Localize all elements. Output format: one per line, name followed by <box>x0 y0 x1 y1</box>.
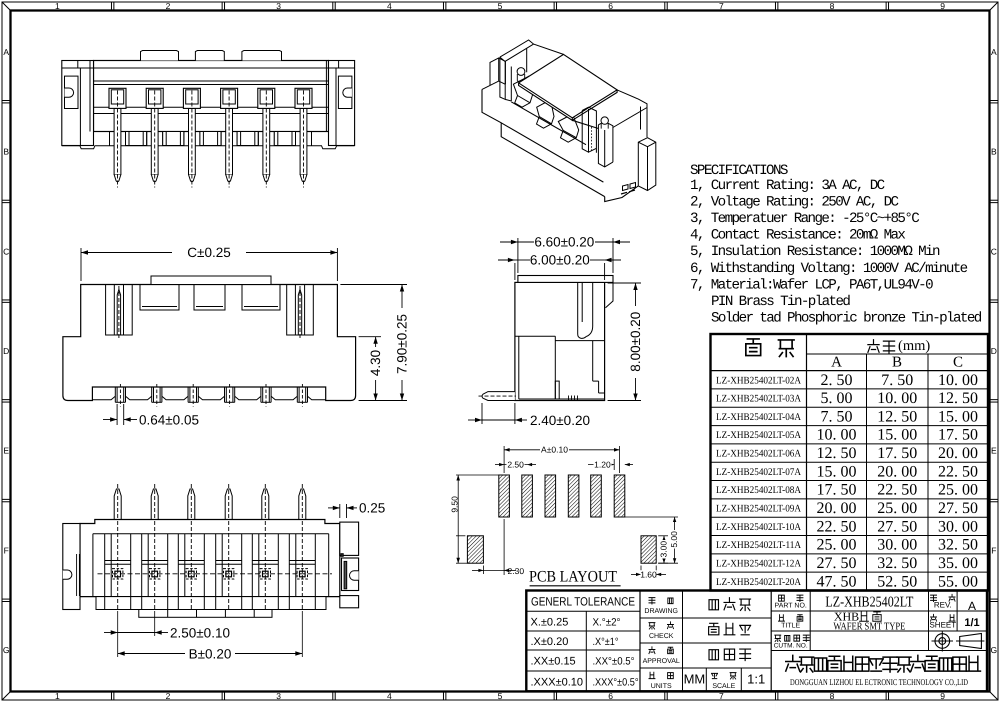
svg-text:.XX°±0.5°: .XX°±0.5° <box>593 656 635 668</box>
svg-text:B±0.20: B±0.20 <box>189 647 232 662</box>
svg-text:LZ-XHB25402LT-12A: LZ-XHB25402LT-12A <box>716 559 802 570</box>
svg-text:22. 50: 22. 50 <box>877 482 917 499</box>
svg-text:C: C <box>3 246 9 256</box>
svg-text:3.00: 3.00 <box>658 541 668 558</box>
svg-text:8: 8 <box>830 1 835 11</box>
svg-text:6: 6 <box>608 1 613 11</box>
svg-text:CUTM. NO.: CUTM. NO. <box>774 643 808 650</box>
svg-text:PIN Brass Tin-plated: PIN Brass Tin-plated <box>711 294 850 310</box>
svg-text:PCB LAYOUT: PCB LAYOUT <box>529 569 617 586</box>
svg-text:6.00±0.20: 6.00±0.20 <box>530 253 590 268</box>
svg-text:LZ-XHB25402LT-03A: LZ-XHB25402LT-03A <box>716 394 802 405</box>
svg-text:MM: MM <box>684 672 706 687</box>
svg-text:30. 00: 30. 00 <box>938 518 978 535</box>
svg-text:PART NO.: PART NO. <box>775 603 807 610</box>
svg-text:SPECIFICATIONS: SPECIFICATIONS <box>690 163 788 179</box>
svg-text:E: E <box>991 446 997 456</box>
svg-text:C: C <box>991 246 997 256</box>
svg-text:LZ-XHB25402LT-20A: LZ-XHB25402LT-20A <box>716 577 802 588</box>
svg-text:3: 3 <box>276 1 281 11</box>
svg-text:SHEET: SHEET <box>929 621 956 630</box>
svg-text:4: 4 <box>387 1 392 11</box>
svg-text:A: A <box>3 47 9 57</box>
svg-text:LZ-XHB25402LT-05A: LZ-XHB25402LT-05A <box>716 430 802 441</box>
svg-text:15. 00: 15. 00 <box>877 427 917 444</box>
svg-text:2.40±0.20: 2.40±0.20 <box>530 413 590 428</box>
svg-text:20. 00: 20. 00 <box>877 463 917 480</box>
svg-text:15. 00: 15. 00 <box>817 463 857 480</box>
svg-text:REV.: REV. <box>934 601 952 610</box>
svg-text:LZ-XHB25402LT-10A: LZ-XHB25402LT-10A <box>716 522 802 533</box>
svg-text:G: G <box>990 645 997 655</box>
svg-text:TITLE: TITLE <box>781 623 800 630</box>
svg-text:7. 50: 7. 50 <box>881 372 913 389</box>
svg-text:LZ-XHB25402LT-11A: LZ-XHB25402LT-11A <box>716 540 802 551</box>
svg-text:X.°±2°: X.°±2° <box>593 617 621 629</box>
svg-text:A: A <box>991 47 997 57</box>
svg-text:(mm): (mm) <box>898 338 930 354</box>
svg-text:52. 50: 52. 50 <box>877 573 917 590</box>
svg-text:UNITS: UNITS <box>651 683 672 690</box>
svg-text:APPROVAL: APPROVAL <box>643 658 680 665</box>
svg-text:27. 50: 27. 50 <box>938 500 978 517</box>
svg-text:9: 9 <box>940 1 945 11</box>
svg-text:2.50: 2.50 <box>507 460 524 470</box>
svg-text:1.20: 1.20 <box>594 460 611 470</box>
svg-text:DRAWING: DRAWING <box>644 608 678 615</box>
svg-text:0.64±0.05: 0.64±0.05 <box>139 413 199 428</box>
svg-text:25. 00: 25. 00 <box>877 500 917 517</box>
svg-text:10. 00: 10. 00 <box>938 372 978 389</box>
svg-text:X.±0.25: X.±0.25 <box>531 617 569 629</box>
svg-text:A±0.10: A±0.10 <box>541 445 568 455</box>
svg-text:LZ-XHB25402LT-08A: LZ-XHB25402LT-08A <box>716 485 802 496</box>
svg-text:55. 00: 55. 00 <box>938 573 978 590</box>
svg-text:35. 00: 35. 00 <box>938 555 978 572</box>
svg-text:7.90±0.25: 7.90±0.25 <box>394 314 409 374</box>
svg-text:LZ-XHB25402LT-02A: LZ-XHB25402LT-02A <box>716 375 802 386</box>
svg-text:17. 50: 17. 50 <box>817 482 857 499</box>
svg-text:12. 50: 12. 50 <box>938 390 978 407</box>
svg-text:G: G <box>3 645 10 655</box>
svg-text:F: F <box>991 545 996 555</box>
svg-text:2: 2 <box>166 691 171 701</box>
svg-text:2: 2 <box>166 1 171 11</box>
svg-text:D: D <box>991 346 997 356</box>
svg-text:LZ-XHB25402LT-06A: LZ-XHB25402LT-06A <box>716 449 802 460</box>
svg-text:E: E <box>3 446 9 456</box>
svg-text:17. 50: 17. 50 <box>877 445 917 462</box>
svg-text:LZ-XHB25402LT-07A: LZ-XHB25402LT-07A <box>716 467 802 478</box>
svg-text:12. 50: 12. 50 <box>817 445 857 462</box>
svg-text:12. 50: 12. 50 <box>877 408 917 425</box>
svg-text:27. 50: 27. 50 <box>877 518 917 535</box>
svg-text:B: B <box>892 355 902 371</box>
svg-text:15. 00: 15. 00 <box>938 408 978 425</box>
svg-text:Solder tad Phosphoric bronze T: Solder tad Phosphoric bronze Tin-plated <box>711 311 982 327</box>
svg-text:B: B <box>991 147 997 157</box>
svg-text:6.60±0.20: 6.60±0.20 <box>534 235 594 250</box>
svg-text:F: F <box>4 545 9 555</box>
svg-text:1: 1 <box>55 1 60 11</box>
svg-text:25. 00: 25. 00 <box>817 537 857 554</box>
svg-text:32. 50: 32. 50 <box>877 555 917 572</box>
svg-text:C±0.25: C±0.25 <box>187 245 230 260</box>
svg-text:2, Voltage Rating: 250V AC, DC: 2, Voltage Rating: 250V AC, DC <box>690 194 899 210</box>
svg-text:1, Current Rating: 3A AC, DC: 1, Current Rating: 3A AC, DC <box>690 178 885 194</box>
svg-text:.XXX°±0.5°: .XXX°±0.5° <box>593 677 639 689</box>
svg-text:5: 5 <box>498 1 503 11</box>
svg-text:10. 00: 10. 00 <box>877 390 917 407</box>
svg-text:.X°±1°: .X°±1° <box>593 636 619 648</box>
svg-text:10. 00: 10. 00 <box>817 427 857 444</box>
svg-text:LZ-XHB25402LT-09A: LZ-XHB25402LT-09A <box>716 504 802 515</box>
svg-text:4, Contact Resistance: 20mΩ Ma: 4, Contact Resistance: 20mΩ Max <box>690 228 905 244</box>
svg-text:C: C <box>953 355 963 371</box>
svg-text:5: 5 <box>498 691 503 701</box>
svg-text:2.30: 2.30 <box>508 566 525 576</box>
svg-text:17. 50: 17. 50 <box>938 427 978 444</box>
svg-text:22. 50: 22. 50 <box>817 518 857 535</box>
svg-text:47. 50: 47. 50 <box>817 573 857 590</box>
svg-text:6, Withstanding Voltang: 1000V: 6, Withstanding Voltang: 1000V AC/minute <box>690 261 968 277</box>
svg-text:GENERL TOLERANCE: GENERL TOLERANCE <box>531 595 635 609</box>
svg-text:20. 00: 20. 00 <box>938 445 978 462</box>
svg-text:A: A <box>968 599 976 613</box>
svg-text:27. 50: 27. 50 <box>817 555 857 572</box>
svg-text:WAFER SMT TYPE: WAFER SMT TYPE <box>833 622 905 633</box>
svg-text:5, Insulation Resistance: 1000: 5, Insulation Resistance: 1000MΩ Min <box>690 244 940 260</box>
svg-text:8.00±0.20: 8.00±0.20 <box>628 312 643 372</box>
svg-text:5. 00: 5. 00 <box>821 390 853 407</box>
svg-text:1/1: 1/1 <box>964 617 979 629</box>
svg-text:SCALE: SCALE <box>712 683 735 690</box>
svg-text:22. 50: 22. 50 <box>938 463 978 480</box>
svg-text:9.50: 9.50 <box>449 496 459 513</box>
svg-text:.XXX±0.10: .XXX±0.10 <box>531 677 584 689</box>
svg-text:7: 7 <box>719 1 724 11</box>
svg-text:25. 00: 25. 00 <box>938 482 978 499</box>
svg-text:B: B <box>3 147 9 157</box>
svg-text:0.25: 0.25 <box>359 501 385 516</box>
svg-text:.X±0.20: .X±0.20 <box>531 636 569 648</box>
svg-text:20. 00: 20. 00 <box>817 500 857 517</box>
svg-text:5.00: 5.00 <box>669 531 679 548</box>
svg-text:3: 3 <box>276 691 281 701</box>
svg-text:2. 50: 2. 50 <box>821 372 853 389</box>
svg-text:7. 50: 7. 50 <box>821 408 853 425</box>
svg-text:30. 00: 30. 00 <box>877 537 917 554</box>
svg-text:3, Temperatuer Range: -25°C~+8: 3, Temperatuer Range: -25°C~+85°C <box>690 211 919 227</box>
svg-text:7, Material:Wafer LCP, PA6T,UL: 7, Material:Wafer LCP, PA6T,UL94V-0 <box>690 277 933 293</box>
svg-text:1.60: 1.60 <box>640 569 657 579</box>
svg-text:4.30: 4.30 <box>368 350 383 376</box>
svg-text:.XX±0.15: .XX±0.15 <box>531 656 576 668</box>
svg-text:D: D <box>3 346 9 356</box>
svg-text:DONGGUAN LIZHOU EL ECTRONIC TE: DONGGUAN LIZHOU EL ECTRONIC TECHNOLOGY C… <box>790 677 968 687</box>
svg-text:32. 50: 32. 50 <box>938 537 978 554</box>
svg-text:4: 4 <box>387 691 392 701</box>
svg-text:LZ-XHB25402LT: LZ-XHB25402LT <box>825 595 913 611</box>
svg-text:CHECK: CHECK <box>649 633 674 640</box>
svg-text:1:1: 1:1 <box>747 672 765 687</box>
svg-text:2.50±0.10: 2.50±0.10 <box>170 626 230 641</box>
svg-text:A: A <box>831 355 842 371</box>
svg-text:1: 1 <box>55 691 60 701</box>
svg-text:LZ-XHB25402LT-04A: LZ-XHB25402LT-04A <box>716 412 802 423</box>
